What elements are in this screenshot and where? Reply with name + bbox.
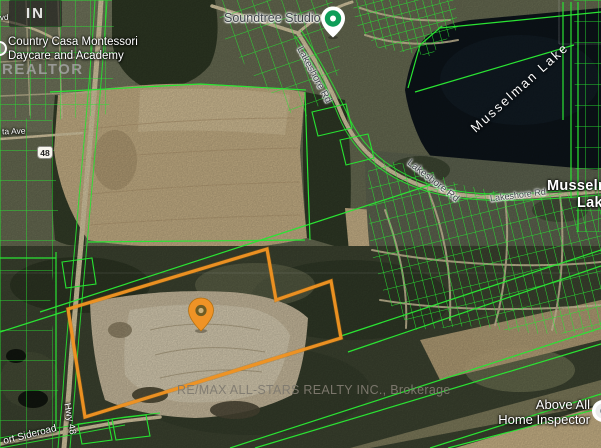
town-label-line2: Lake <box>577 196 601 212</box>
realtor-watermark: REALTOR <box>2 61 84 78</box>
road-label-ta-ave: ta Ave <box>2 127 26 137</box>
inspector-poi-label: Above All Home Inspector <box>498 397 590 427</box>
highway-48-shield: 48 <box>37 146 53 159</box>
brokerage-logo-watermark: IN <box>9 0 62 27</box>
satellite-basemap <box>0 0 601 448</box>
town-label-line1: Musselman <box>547 179 601 195</box>
daycare-poi-label: Country Casa Montessori Daycare and Acad… <box>8 36 138 63</box>
daycare-label-line1: Country Casa Montessori <box>8 36 138 50</box>
brokerage-text-watermark: RE/MAX ALL-STARS REALTY INC., Brokerage <box>177 383 451 397</box>
road-label-blvd-partial: vd <box>0 14 9 23</box>
inspector-label-line1: Above All <box>498 397 590 412</box>
studio-poi-label: Soundtree Studio <box>224 12 321 26</box>
map-canvas[interactable]: vd IN Country Casa Montessori Daycare an… <box>0 0 601 448</box>
inspector-label-line2: Home Inspector <box>498 412 590 427</box>
